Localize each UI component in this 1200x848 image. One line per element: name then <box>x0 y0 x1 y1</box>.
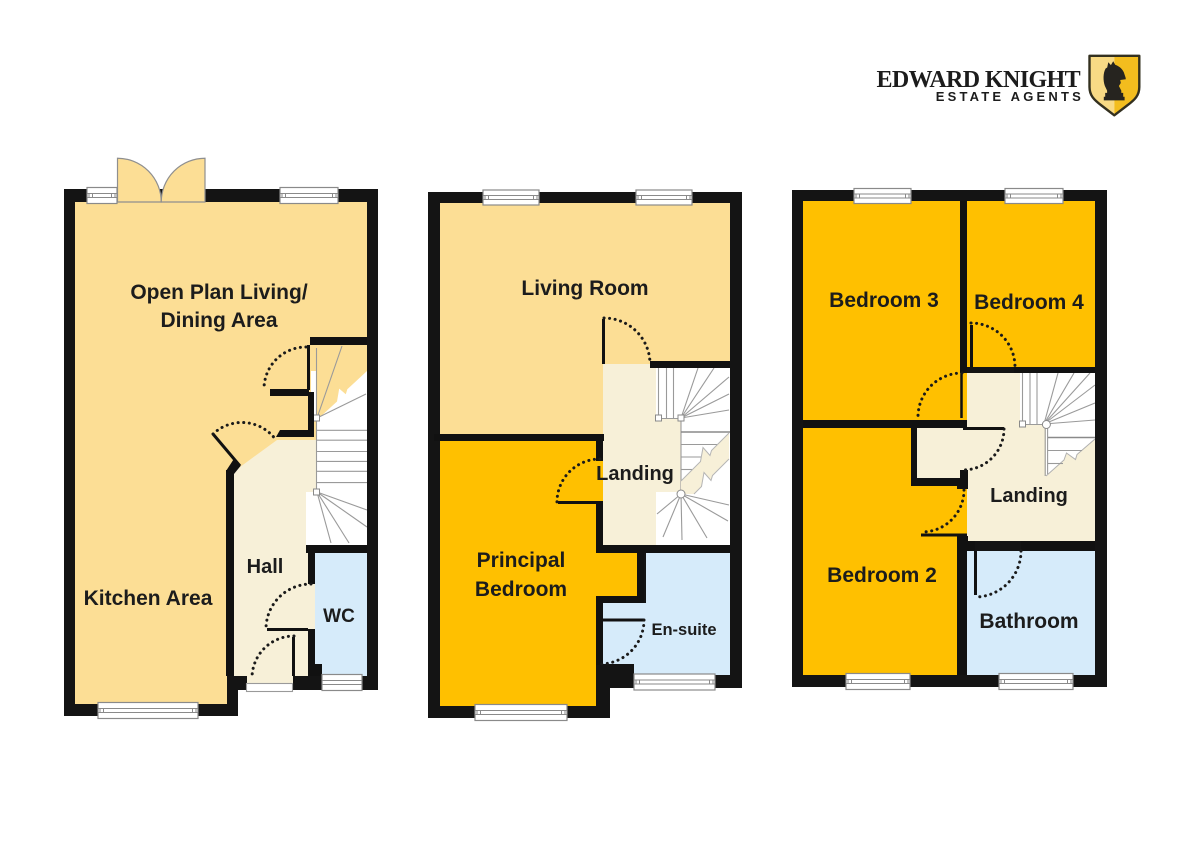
svg-text:Living Room: Living Room <box>521 277 648 300</box>
svg-text:Principal: Principal <box>477 549 566 572</box>
svg-text:ESTATE AGENTS: ESTATE AGENTS <box>936 89 1084 104</box>
svg-text:Bedroom 3: Bedroom 3 <box>829 289 939 312</box>
svg-text:Dining Area: Dining Area <box>160 309 277 332</box>
svg-text:Hall: Hall <box>247 556 284 578</box>
svg-text:En-suite: En-suite <box>651 621 716 639</box>
svg-text:Landing: Landing <box>596 463 674 485</box>
svg-text:Kitchen Area: Kitchen Area <box>84 587 213 610</box>
svg-text:Bedroom: Bedroom <box>475 578 567 601</box>
svg-text:Bedroom 2: Bedroom 2 <box>827 564 937 587</box>
svg-text:Landing: Landing <box>990 485 1068 507</box>
svg-text:WC: WC <box>323 606 355 627</box>
svg-text:Bathroom: Bathroom <box>979 610 1078 633</box>
svg-text:Bedroom 4: Bedroom 4 <box>974 291 1084 314</box>
svg-text:Open Plan Living/: Open Plan Living/ <box>130 281 308 304</box>
